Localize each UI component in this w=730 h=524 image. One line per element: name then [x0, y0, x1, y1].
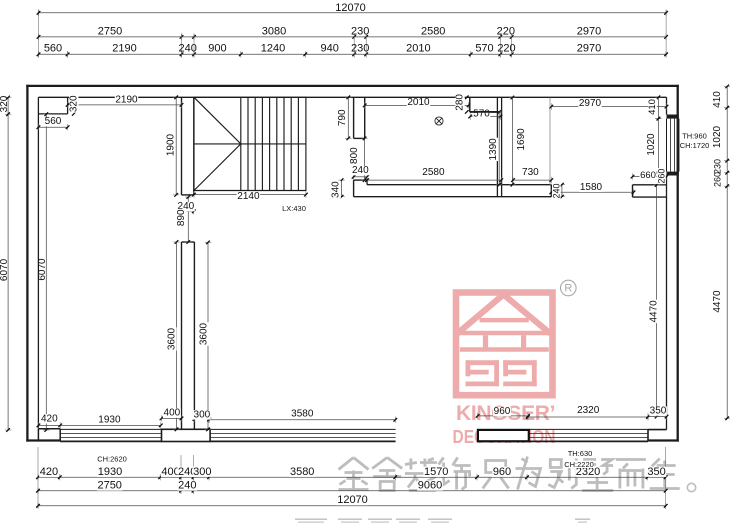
svg-text:230: 230 — [351, 43, 369, 55]
svg-text:1930: 1930 — [98, 466, 122, 478]
svg-text:660: 660 — [640, 170, 656, 181]
svg-text:960: 960 — [493, 466, 511, 478]
svg-text:560: 560 — [45, 116, 62, 127]
svg-text:560: 560 — [44, 43, 62, 55]
svg-text:1580: 1580 — [580, 182, 603, 193]
svg-text:2010: 2010 — [406, 43, 430, 55]
svg-text:2970: 2970 — [577, 43, 601, 55]
svg-text:TH:960: TH:960 — [682, 132, 707, 141]
svg-text:CH:2620: CH:2620 — [97, 454, 127, 463]
svg-text:960: 960 — [494, 406, 511, 417]
svg-text:340: 340 — [331, 181, 342, 198]
svg-text:240: 240 — [179, 43, 197, 55]
svg-text:400: 400 — [164, 408, 181, 419]
svg-text:CH:1720: CH:1720 — [680, 141, 710, 150]
svg-text:2580: 2580 — [421, 25, 445, 37]
svg-text:280: 280 — [455, 94, 466, 111]
svg-text:LX:430: LX:430 — [282, 204, 306, 213]
svg-text:900: 900 — [208, 43, 226, 55]
svg-text:420: 420 — [40, 466, 58, 478]
svg-text:9060: 9060 — [418, 480, 442, 492]
svg-text:3080: 3080 — [262, 25, 286, 37]
svg-text:2750: 2750 — [97, 480, 121, 492]
svg-text:350: 350 — [647, 466, 665, 478]
svg-text:320: 320 — [68, 95, 79, 112]
svg-text:2580: 2580 — [422, 167, 445, 178]
svg-text:4470: 4470 — [648, 300, 659, 323]
svg-text:CH:2220: CH:2220 — [564, 460, 594, 469]
svg-text:2320: 2320 — [577, 405, 600, 416]
svg-text:940: 940 — [321, 43, 339, 55]
svg-text:260: 260 — [657, 169, 667, 184]
svg-text:570: 570 — [475, 43, 493, 55]
svg-text:TH:630: TH:630 — [568, 449, 593, 458]
svg-text:1020: 1020 — [646, 133, 657, 156]
svg-text:400: 400 — [161, 466, 179, 478]
svg-text:3600: 3600 — [199, 322, 210, 345]
svg-text:1570: 1570 — [424, 466, 448, 478]
svg-text:3580: 3580 — [291, 409, 314, 420]
svg-text:R: R — [564, 283, 572, 295]
svg-text:2970: 2970 — [579, 98, 602, 109]
svg-text:3580: 3580 — [290, 466, 314, 478]
svg-text:1390: 1390 — [488, 138, 499, 161]
svg-text:730: 730 — [522, 167, 539, 178]
svg-text:890: 890 — [176, 209, 187, 226]
svg-text:12070: 12070 — [337, 494, 368, 506]
svg-text:240: 240 — [178, 480, 196, 492]
svg-text:2970: 2970 — [577, 25, 601, 37]
svg-text:2190: 2190 — [112, 43, 136, 55]
svg-text:1900: 1900 — [165, 133, 176, 156]
svg-text:6070: 6070 — [0, 258, 10, 281]
svg-text:570: 570 — [473, 109, 490, 120]
svg-text:230: 230 — [713, 159, 723, 174]
svg-text:220: 220 — [497, 43, 515, 55]
svg-text:410: 410 — [712, 91, 723, 108]
svg-text:2750: 2750 — [98, 25, 122, 37]
svg-text:2010: 2010 — [407, 97, 430, 108]
svg-text:1930: 1930 — [98, 415, 121, 426]
svg-text:240: 240 — [551, 183, 561, 198]
svg-text:1020: 1020 — [712, 125, 723, 148]
svg-text:1690: 1690 — [516, 128, 527, 151]
svg-text:240: 240 — [352, 165, 369, 176]
svg-text:410: 410 — [647, 99, 658, 115]
svg-text:12070: 12070 — [335, 2, 366, 14]
svg-text:2140: 2140 — [237, 191, 260, 202]
svg-text:300: 300 — [194, 409, 211, 420]
svg-text:300: 300 — [193, 466, 211, 478]
svg-text:4470: 4470 — [712, 290, 723, 313]
svg-text:1240: 1240 — [261, 43, 285, 55]
svg-text:220: 220 — [497, 25, 515, 37]
svg-text:3600: 3600 — [167, 327, 178, 350]
svg-text:260: 260 — [713, 172, 723, 187]
svg-text:350: 350 — [650, 406, 667, 417]
svg-text:2190: 2190 — [115, 94, 138, 105]
svg-text:230: 230 — [351, 25, 369, 37]
svg-text:800: 800 — [349, 147, 360, 164]
svg-text:420: 420 — [41, 413, 58, 424]
svg-text:6070: 6070 — [37, 258, 48, 281]
svg-text:790: 790 — [337, 109, 348, 126]
svg-text:320: 320 — [0, 95, 10, 112]
